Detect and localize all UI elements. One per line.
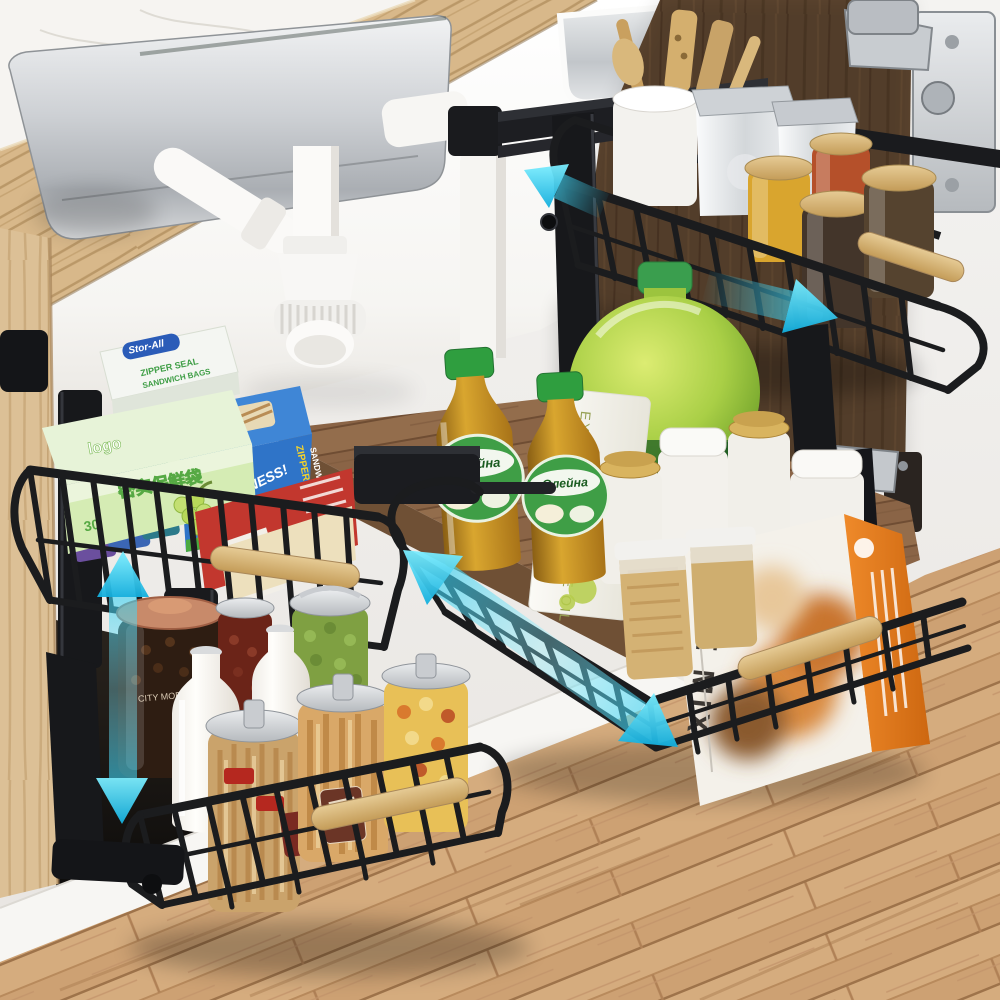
bamboo-lid	[745, 156, 813, 180]
canister-lid	[660, 428, 726, 456]
trap-nut	[283, 236, 347, 256]
adjust-screw	[541, 214, 557, 230]
clamp-lever	[333, 674, 353, 700]
bamboo-lid	[810, 133, 872, 155]
left-basket-floor-shadow	[130, 920, 530, 976]
canister-body	[728, 432, 790, 542]
leveling-foot	[142, 874, 162, 894]
pie-side-logo	[854, 538, 874, 558]
spice-jar-4	[862, 165, 936, 298]
stick-band	[224, 768, 254, 784]
spatula-hole	[681, 53, 688, 60]
clamp-lid	[216, 598, 274, 618]
upper-mount-block	[0, 330, 48, 392]
bottle-cap	[536, 371, 583, 402]
bamboo-lid	[800, 191, 874, 217]
pipe-column-shade	[496, 150, 506, 358]
canister-lid	[792, 450, 862, 478]
hinge-boss	[922, 82, 954, 114]
hinge-screw	[945, 35, 959, 49]
bracket-screw	[898, 461, 908, 471]
bottle-cap	[444, 347, 494, 380]
arrow-body	[109, 597, 137, 778]
flip-lid-lever	[244, 700, 264, 728]
hinge-cup	[848, 0, 918, 34]
grain-container-2	[685, 526, 761, 649]
crock-mouth	[613, 86, 697, 112]
copper-lid-knob	[148, 598, 192, 614]
clamp-lever	[416, 654, 436, 678]
tin-lid	[772, 98, 858, 126]
crock-body	[613, 98, 697, 206]
bamboo-lid	[862, 165, 936, 191]
product-photo-under-sink-organizer: PIE MIX EXTRA VIRGIN OLIVE OIL Олейна	[0, 0, 1000, 1000]
rail-end-block	[448, 106, 502, 156]
sink-corner-shadow	[33, 188, 157, 236]
trap-cup-shade	[294, 335, 346, 365]
gold-lid-top	[604, 451, 656, 467]
gold-lid-canister-2	[728, 411, 790, 542]
scene: PIE MIX EXTRA VIRGIN OLIVE OIL Олейна	[0, 0, 1000, 1000]
hinge-screw	[945, 178, 959, 192]
spatula-hole	[675, 35, 682, 42]
base-foot-bar	[51, 839, 185, 886]
gold-lid-top	[733, 411, 785, 427]
grain-lid	[685, 526, 756, 548]
grain-container-1	[614, 538, 697, 681]
